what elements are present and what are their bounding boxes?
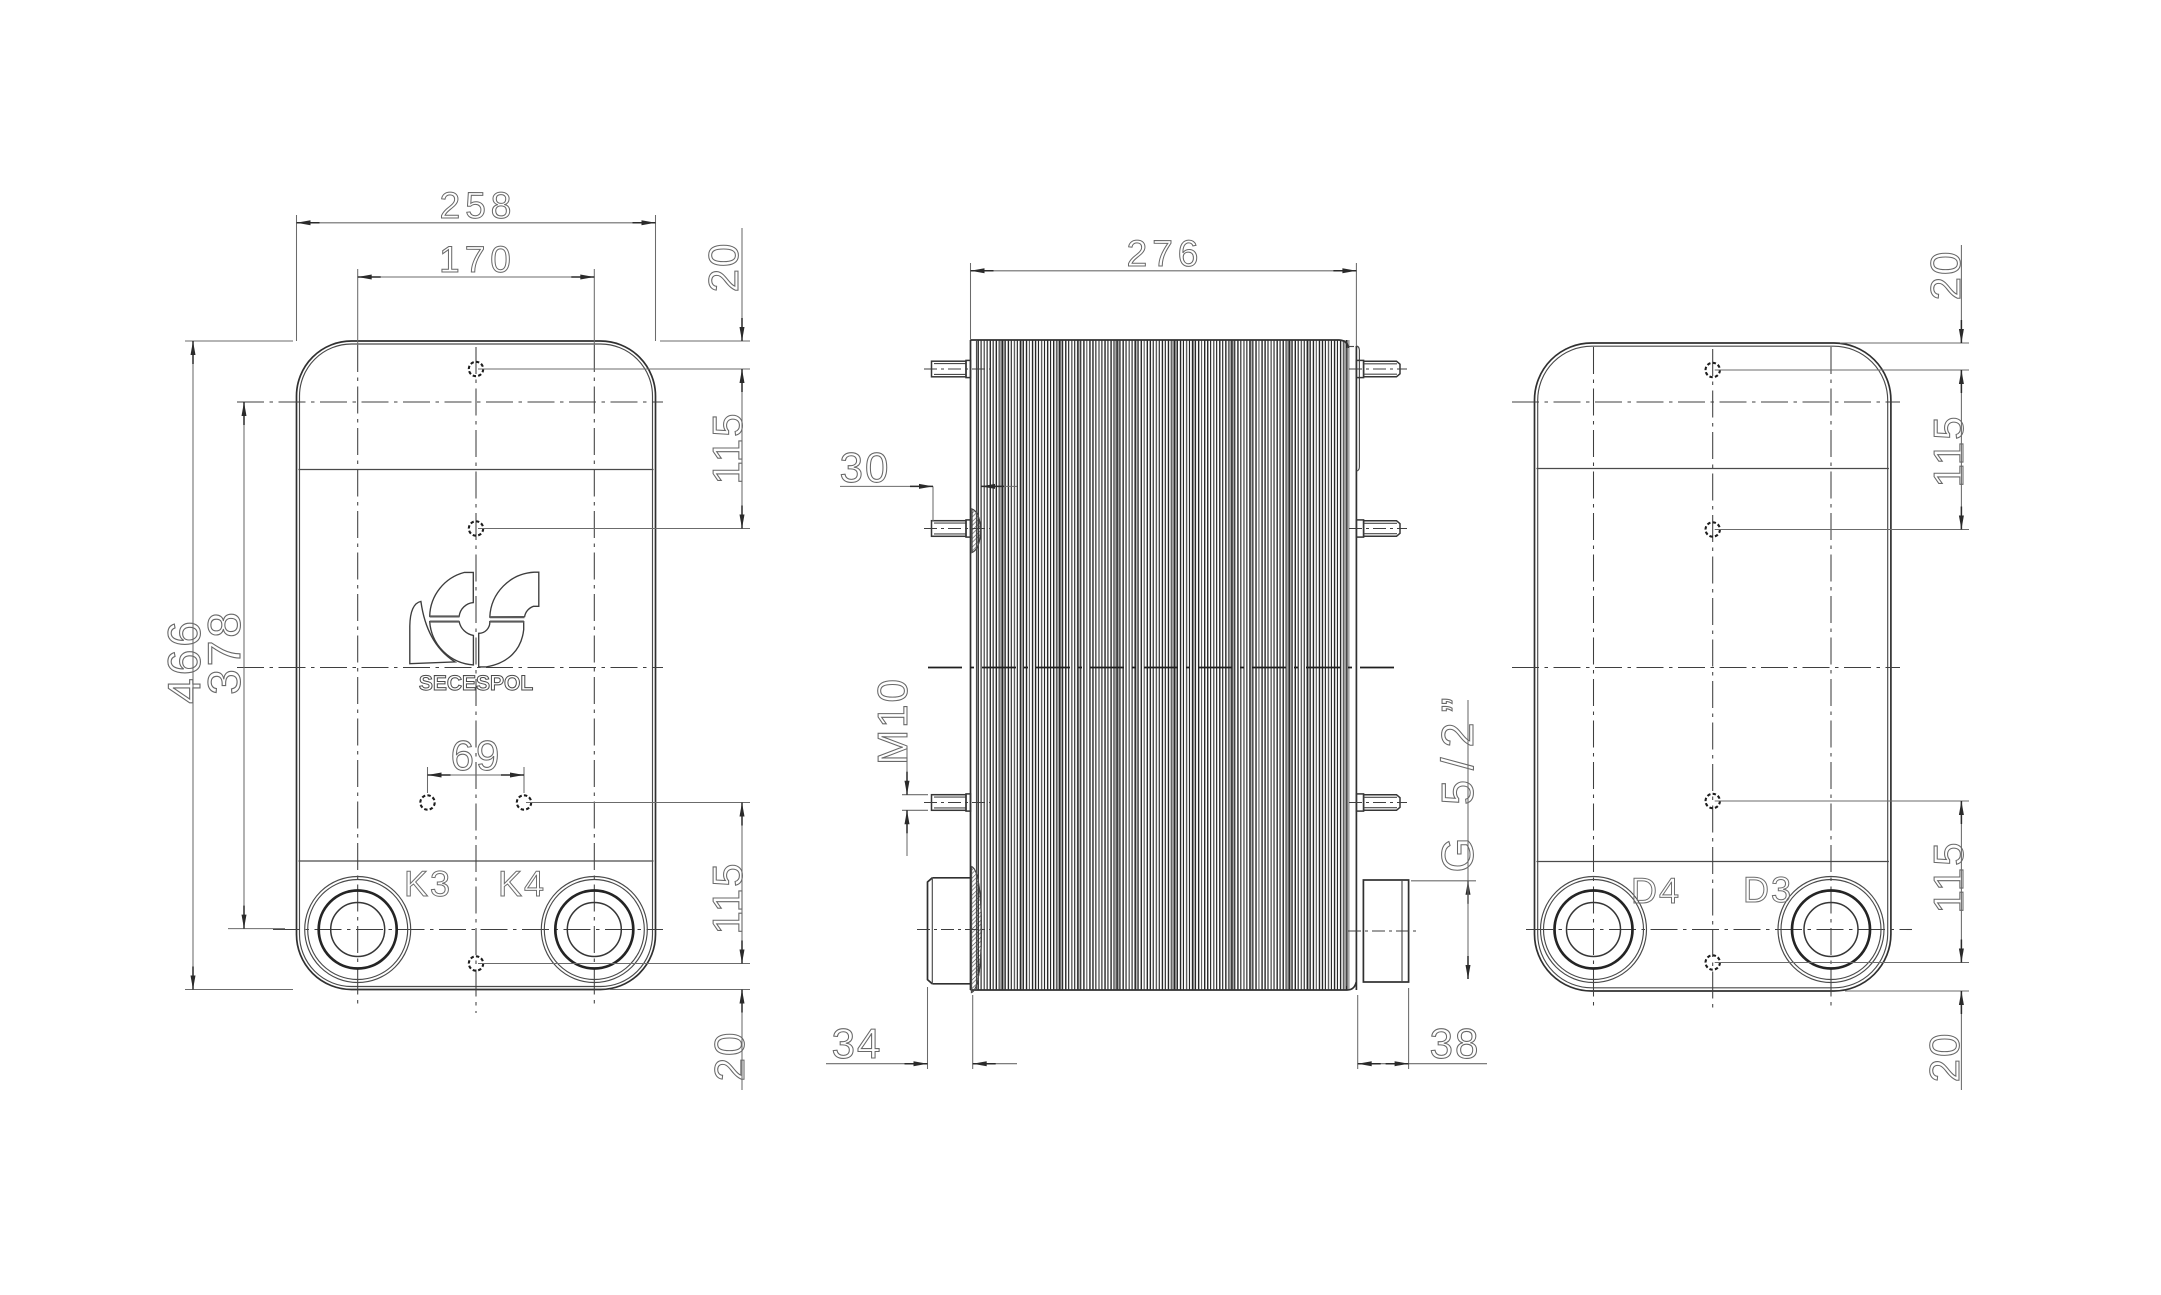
svg-text:D4: D4 <box>1631 870 1681 911</box>
svg-text:30: 30 <box>840 444 891 491</box>
svg-text:170: 170 <box>439 239 516 280</box>
svg-text:115: 115 <box>704 412 751 485</box>
svg-text:378: 378 <box>198 609 250 695</box>
svg-text:G 5/2”: G 5/2” <box>1432 687 1483 872</box>
svg-text:115: 115 <box>1925 415 1972 488</box>
svg-text:M10: M10 <box>869 677 916 765</box>
svg-text:38: 38 <box>1430 1020 1481 1067</box>
svg-text:115: 115 <box>704 862 751 935</box>
svg-text:115: 115 <box>1925 841 1972 914</box>
svg-text:20: 20 <box>1921 1032 1968 1083</box>
svg-text:D3: D3 <box>1743 869 1793 910</box>
svg-text:20: 20 <box>1922 250 1969 301</box>
svg-text:20: 20 <box>706 1031 753 1082</box>
svg-text:K3: K3 <box>404 863 452 904</box>
svg-text:20: 20 <box>700 242 747 293</box>
svg-text:276: 276 <box>1127 233 1204 274</box>
svg-text:SECESPOL: SECESPOL <box>419 672 534 695</box>
svg-text:69: 69 <box>451 732 502 779</box>
svg-text:K4: K4 <box>498 863 546 904</box>
svg-text:34: 34 <box>832 1020 883 1067</box>
svg-text:258: 258 <box>440 185 517 226</box>
